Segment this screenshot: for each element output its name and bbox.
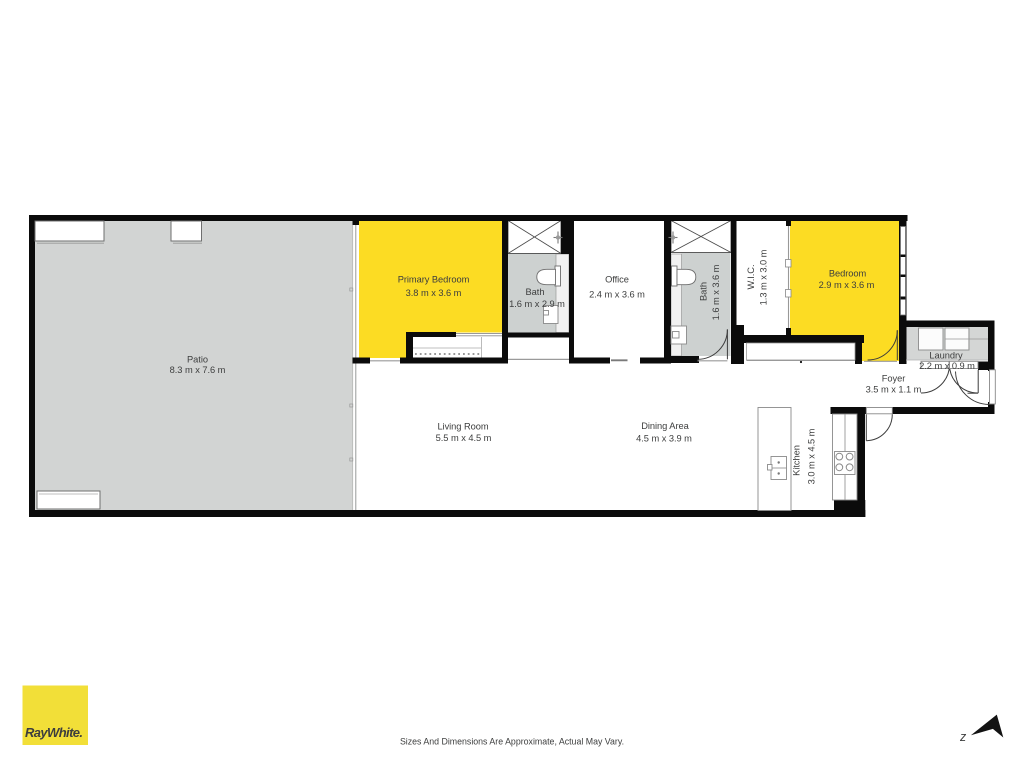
svg-text:Bath: Bath	[526, 287, 545, 297]
svg-text:Dining Area: Dining Area	[641, 421, 689, 431]
svg-text:5.5 m x 4.5 m: 5.5 m x 4.5 m	[436, 433, 492, 443]
svg-text:Bath: Bath	[698, 282, 708, 301]
svg-text:Bedroom: Bedroom	[829, 268, 867, 278]
svg-text:8.3 m x 7.6 m: 8.3 m x 7.6 m	[170, 365, 226, 375]
svg-text:3.5 m x 1.1 m: 3.5 m x 1.1 m	[866, 384, 922, 394]
svg-text:3.0 m x 4.5 m: 3.0 m x 4.5 m	[806, 428, 816, 484]
svg-text:Foyer: Foyer	[882, 373, 906, 383]
svg-text:3.8 m x 3.6 m: 3.8 m x 3.6 m	[406, 288, 462, 298]
svg-text:RayWhite.: RayWhite.	[25, 725, 82, 740]
svg-text:Sizes And Dimensions Are Appro: Sizes And Dimensions Are Approximate, Ac…	[400, 736, 624, 746]
svg-text:z: z	[959, 730, 967, 744]
svg-text:Office: Office	[605, 274, 629, 284]
svg-text:W.I.C.: W.I.C.	[746, 264, 756, 289]
svg-text:1.6 m x 3.6 m: 1.6 m x 3.6 m	[711, 264, 721, 320]
svg-text:1.3 m x 3.0 m: 1.3 m x 3.0 m	[758, 249, 768, 305]
svg-text:2.4 m x 3.6 m: 2.4 m x 3.6 m	[589, 289, 645, 299]
svg-text:Laundry: Laundry	[929, 351, 963, 361]
svg-text:2.9 m x 3.6 m: 2.9 m x 3.6 m	[819, 280, 875, 290]
svg-text:1.6 m x 2.9 m: 1.6 m x 2.9 m	[509, 299, 565, 309]
svg-text:Primary Bedroom: Primary Bedroom	[398, 274, 470, 284]
svg-text:Living Room: Living Room	[437, 421, 488, 431]
svg-text:Kitchen: Kitchen	[791, 445, 801, 476]
svg-text:Patio: Patio	[187, 354, 208, 364]
svg-text:4.5 m x 3.9 m: 4.5 m x 3.9 m	[636, 433, 692, 443]
svg-text:2.2 m x 0.9 m: 2.2 m x 0.9 m	[919, 361, 975, 371]
